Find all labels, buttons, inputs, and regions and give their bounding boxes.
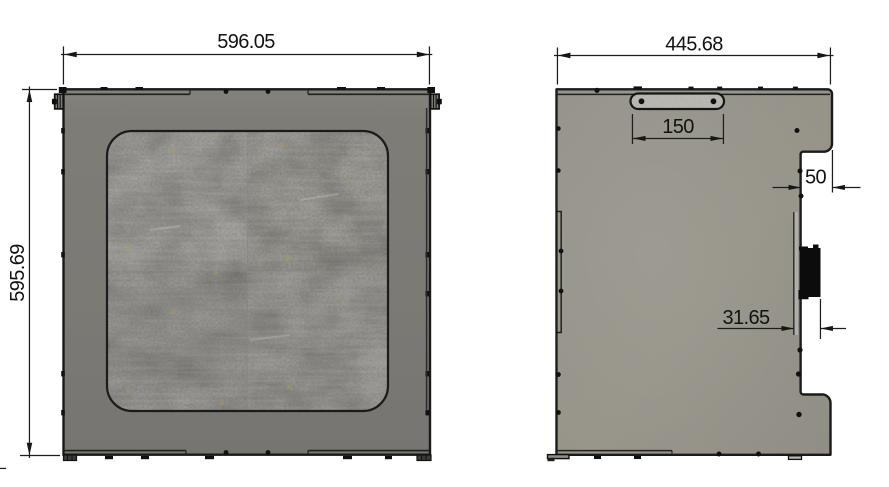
svg-text:50: 50 xyxy=(805,166,827,188)
svg-text:596.05: 596.05 xyxy=(217,31,275,53)
svg-text:31.65: 31.65 xyxy=(722,307,770,329)
svg-text:595.69: 595.69 xyxy=(7,244,29,302)
svg-text:445.68: 445.68 xyxy=(665,33,723,55)
svg-text:150: 150 xyxy=(662,116,694,138)
